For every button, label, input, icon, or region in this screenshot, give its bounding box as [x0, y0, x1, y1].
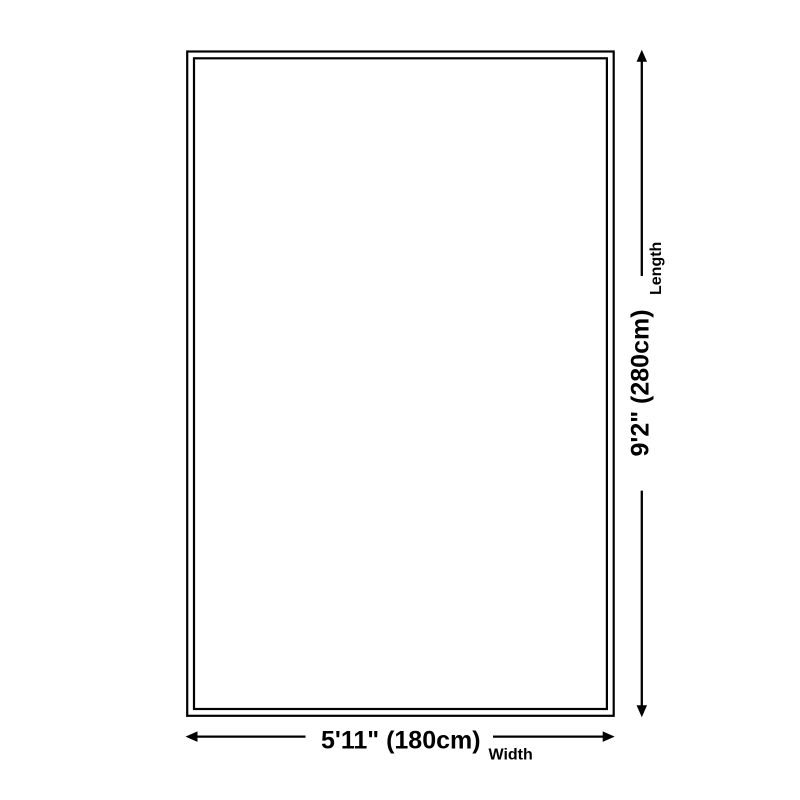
svg-text:5'11" (180cm): 5'11" (180cm) — [321, 727, 481, 755]
svg-text:Length: Length — [648, 242, 665, 295]
svg-text:9'2" (280cm): 9'2" (280cm) — [627, 309, 655, 456]
svg-text:Width: Width — [489, 747, 533, 764]
